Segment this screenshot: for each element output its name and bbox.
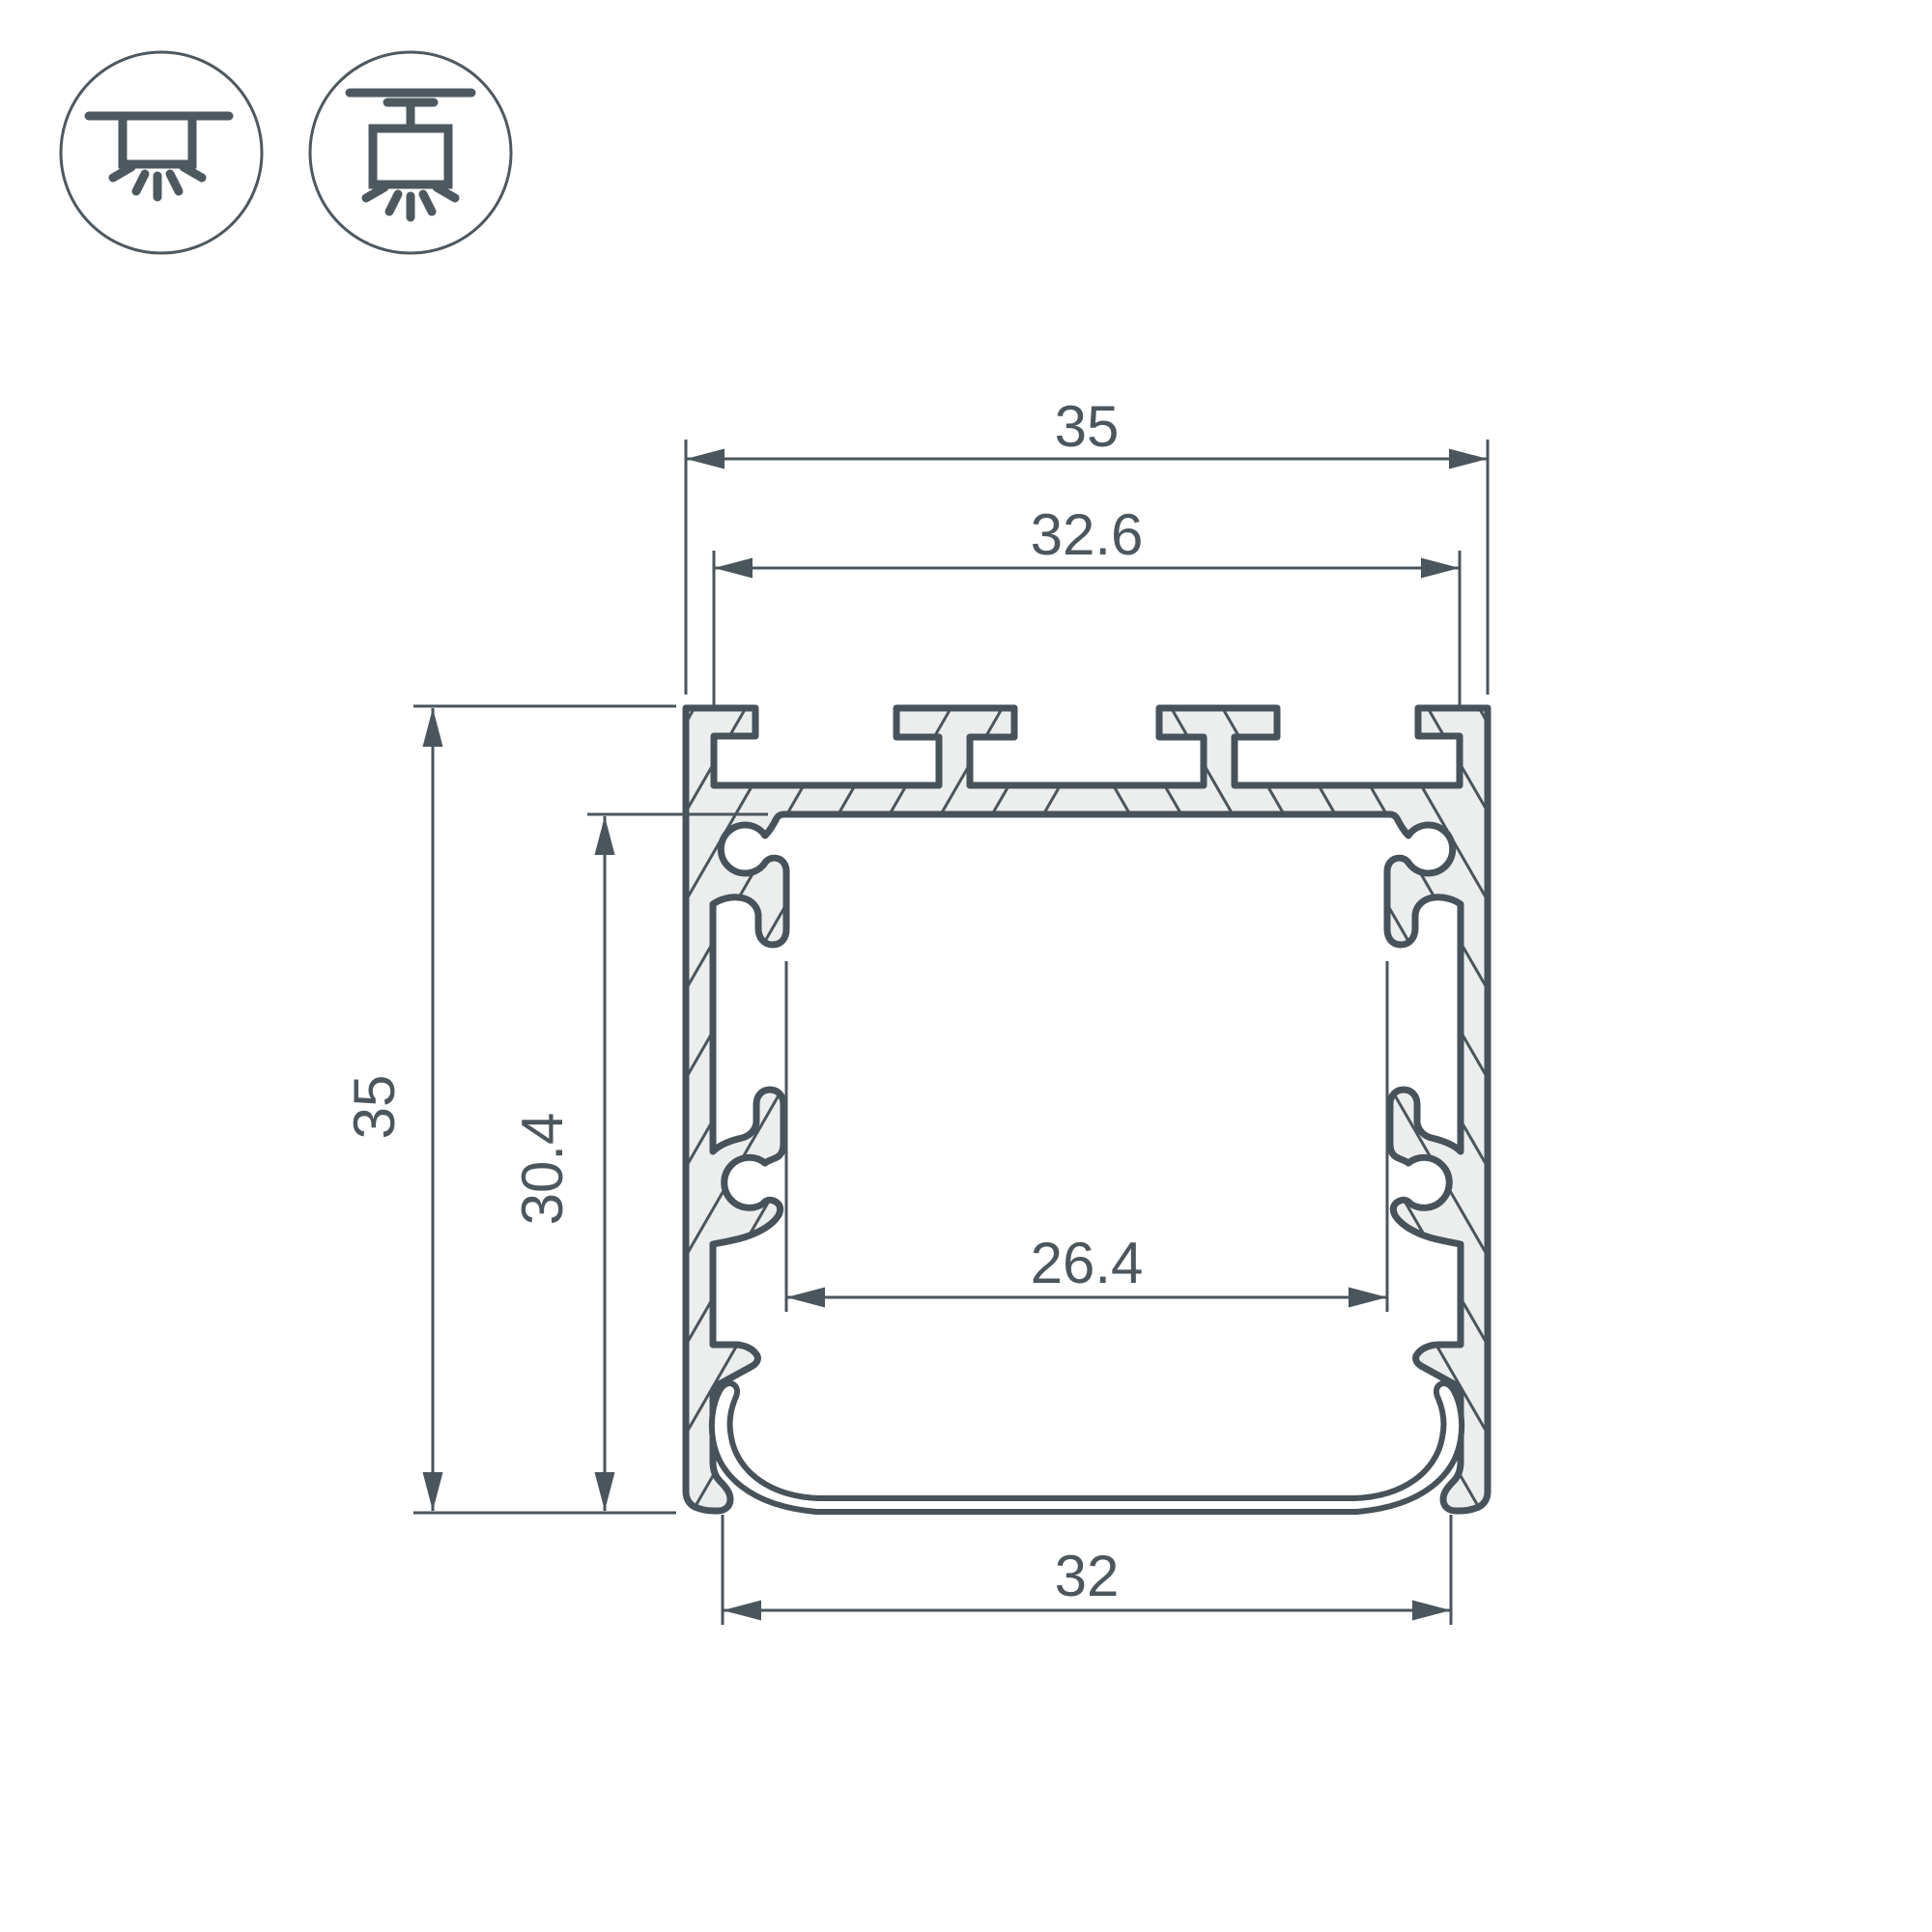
dim-overall-height bbox=[423, 708, 443, 1511]
label-overall-height: 35 bbox=[342, 1075, 407, 1140]
mounting-type-icons bbox=[61, 52, 511, 253]
extension-lines bbox=[413, 440, 1488, 1625]
label-bottom-opening-width: 32 bbox=[1055, 1544, 1120, 1608]
label-overall-width: 35 bbox=[1055, 394, 1120, 459]
profile-cross-section bbox=[686, 708, 1488, 1512]
light-rays bbox=[366, 187, 455, 217]
technical-drawing-page: 35 32.6 35 30.4 26.4 32 bbox=[0, 0, 1932, 1932]
light-rays bbox=[113, 167, 202, 197]
technical-drawing: 35 32.6 35 30.4 26.4 32 bbox=[0, 0, 1932, 1932]
dim-inner-height bbox=[595, 816, 615, 1511]
diffuser-cover bbox=[712, 1383, 1462, 1512]
aluminum-body-right-half bbox=[1087, 708, 1488, 1511]
pendant-mount-icon bbox=[310, 52, 511, 253]
label-led-platform-width: 26.4 bbox=[1031, 1231, 1144, 1295]
label-inner-height: 30.4 bbox=[510, 1113, 575, 1226]
dimension-labels: 35 32.6 35 30.4 26.4 32 bbox=[342, 394, 1143, 1608]
label-top-groove-width: 32.6 bbox=[1031, 502, 1144, 567]
aluminum-body-left-half bbox=[686, 708, 1087, 1511]
surface-mount-icon bbox=[61, 52, 262, 253]
dimensions bbox=[413, 440, 1488, 1625]
